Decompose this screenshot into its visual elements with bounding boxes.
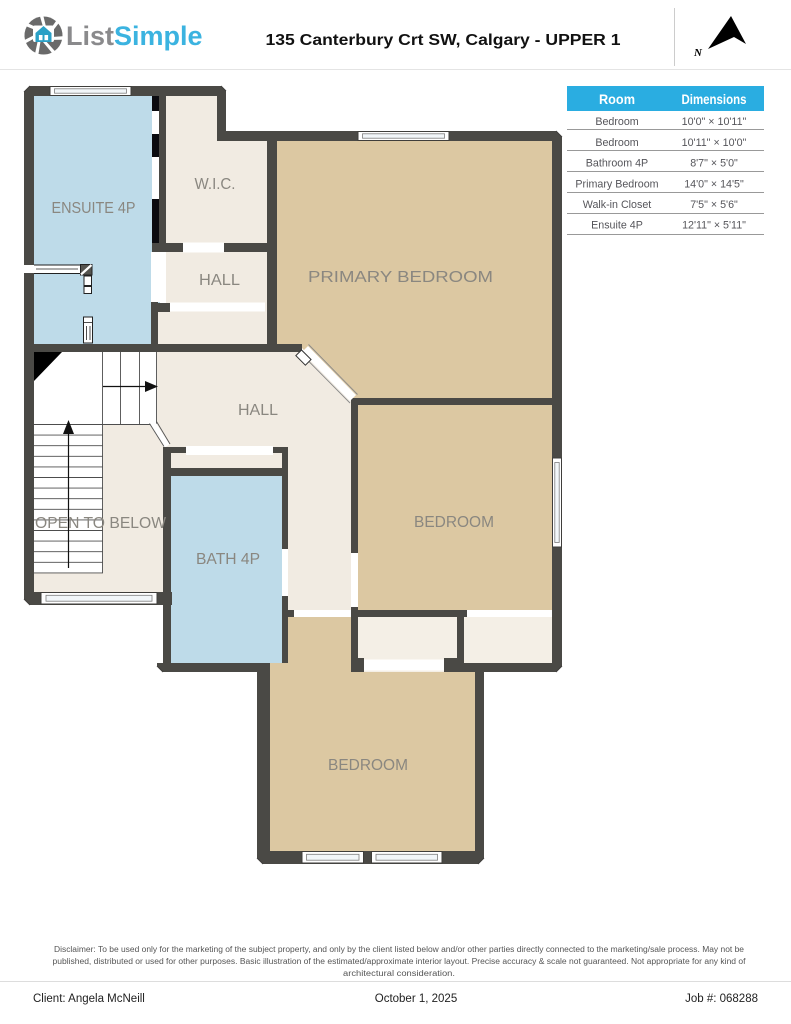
svg-text:Bathroom 4P: Bathroom 4P <box>586 158 648 170</box>
svg-text:Bedroom: Bedroom <box>595 137 638 149</box>
svg-text:10'11" × 10'0": 10'11" × 10'0" <box>682 137 747 149</box>
svg-text:Client: Angela McNeill: Client: Angela McNeill <box>33 993 145 1005</box>
svg-text:October 1, 2025: October 1, 2025 <box>375 993 457 1005</box>
svg-text:Primary Bedroom: Primary Bedroom <box>575 179 658 191</box>
svg-text:BEDROOM: BEDROOM <box>328 757 408 774</box>
svg-text:Ensuite 4P: Ensuite 4P <box>591 220 643 232</box>
svg-text:ListSimple: ListSimple <box>66 21 203 51</box>
svg-text:8'7" × 5'0": 8'7" × 5'0" <box>690 158 738 170</box>
svg-text:published, distributed or used: published, distributed or used for other… <box>53 957 747 966</box>
svg-text:BEDROOM: BEDROOM <box>414 514 494 531</box>
svg-text:Bedroom: Bedroom <box>595 116 638 128</box>
svg-text:W.I.C.: W.I.C. <box>195 176 236 193</box>
svg-text:14'0" × 14'5": 14'0" × 14'5" <box>684 179 744 191</box>
svg-text:Disclaimer: To be used only fo: Disclaimer: To be used only for the mark… <box>54 945 745 954</box>
svg-text:OPEN TO BELOW: OPEN TO BELOW <box>35 515 166 532</box>
svg-text:BATH 4P: BATH 4P <box>196 551 260 568</box>
svg-text:135 Canterbury Crt SW, Calgary: 135 Canterbury Crt SW, Calgary - UPPER 1 <box>266 32 621 49</box>
svg-text:Walk-in Closet: Walk-in Closet <box>583 199 652 211</box>
svg-text:7'5" × 5'6": 7'5" × 5'6" <box>690 199 738 211</box>
svg-text:architectural consideration.: architectural consideration. <box>343 969 455 978</box>
svg-text:HALL: HALL <box>238 402 278 419</box>
svg-text:Dimensions: Dimensions <box>682 91 747 107</box>
svg-text:Job #: 068288: Job #: 068288 <box>685 993 758 1005</box>
svg-text:Room: Room <box>599 91 635 107</box>
svg-text:10'0" × 10'11": 10'0" × 10'11" <box>682 116 747 128</box>
svg-text:N: N <box>693 47 703 59</box>
svg-text:ENSUITE 4P: ENSUITE 4P <box>52 200 136 217</box>
svg-text:12'11" × 5'11": 12'11" × 5'11" <box>682 220 746 232</box>
svg-text:HALL: HALL <box>199 272 240 289</box>
svg-text:PRIMARY BEDROOM: PRIMARY BEDROOM <box>308 269 493 286</box>
